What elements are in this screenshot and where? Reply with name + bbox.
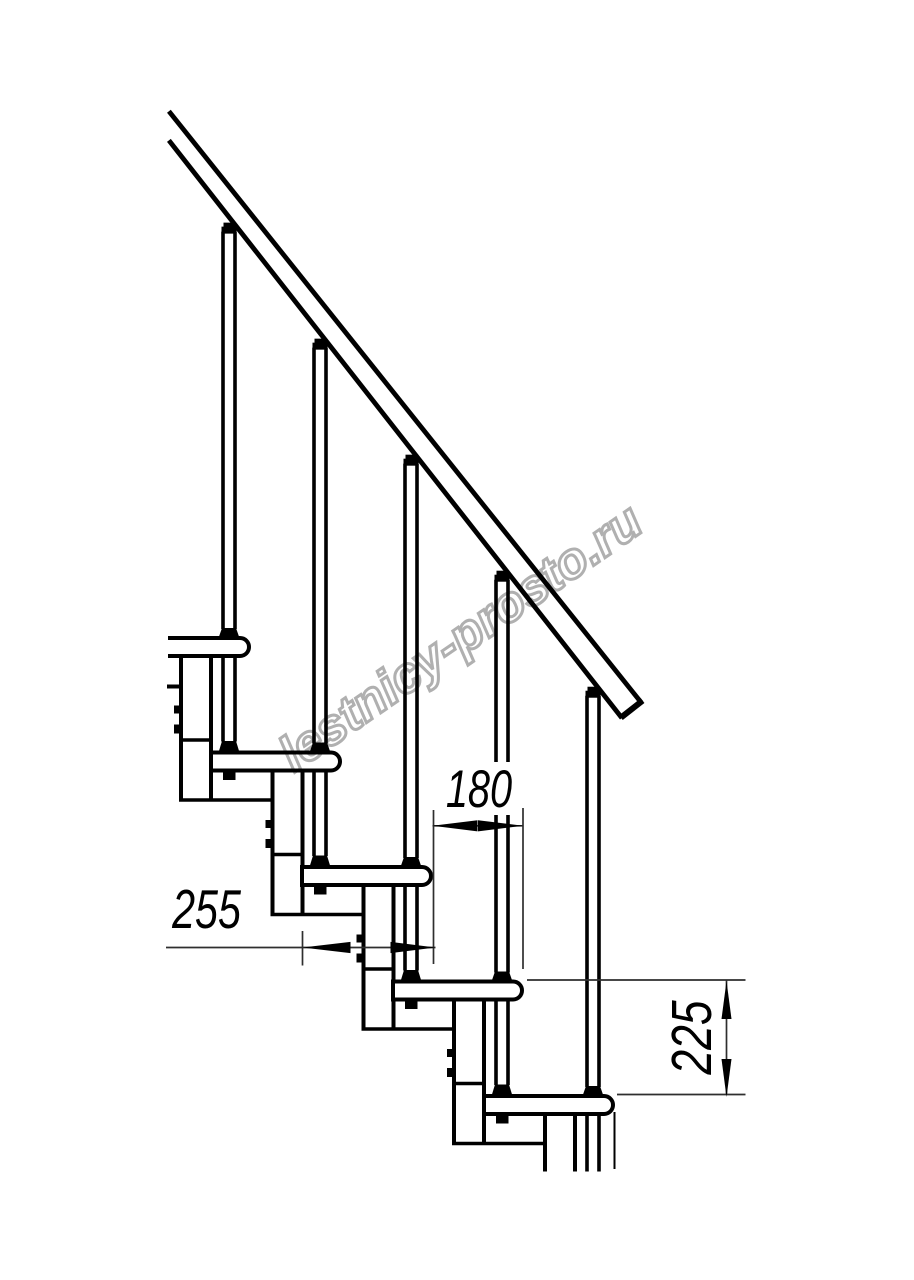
svg-text:225: 225 xyxy=(660,1000,724,1076)
svg-text:180: 180 xyxy=(446,759,512,818)
svg-text:255: 255 xyxy=(171,879,241,940)
